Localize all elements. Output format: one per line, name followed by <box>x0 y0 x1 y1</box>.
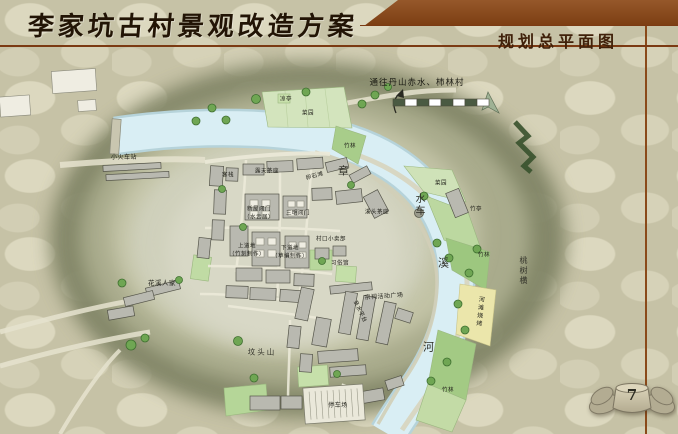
map-label-0: 通往丹山赤水、柿林村 <box>369 79 464 88</box>
page-number: 7 <box>588 386 676 404</box>
map-label-16: （竹刻制作） <box>229 252 265 258</box>
slide-title: 李家坑古村景观改造方案 <box>26 6 359 43</box>
map-label-28: 停车场 <box>328 403 348 409</box>
map-label-17: 下道地 <box>281 246 299 252</box>
section-label: 规划总平面图 <box>498 28 618 52</box>
map-label-33: 河 <box>423 342 435 353</box>
map-label-7: 露天茶座 <box>255 169 279 175</box>
map-label-30: 水 <box>416 195 427 205</box>
map-label-21: 花溪人家 <box>148 280 176 287</box>
map-label-2: 凉亭 <box>280 97 292 103</box>
map-label-22: 坟头山 <box>248 348 277 356</box>
map-label-27: 竹林 <box>442 388 454 394</box>
map-label-8: 新屋阊门 <box>247 207 271 213</box>
map-label-23: 宗祠活动广场 <box>364 293 403 302</box>
map-label-26: 桃树横 <box>519 256 527 286</box>
map-label-10: 三明阊门 <box>286 211 310 217</box>
map-label-15: 上道地 <box>238 244 256 250</box>
map-label-11: 溪头茶座 <box>365 210 389 216</box>
map-label-5: 卵石滩 <box>306 172 325 182</box>
map-label-25: 河滩烧烤 <box>474 296 483 328</box>
map-label-3: 菜园 <box>302 111 314 117</box>
map-label-12: 菜园 <box>435 181 447 187</box>
map-label-13: 竹亭 <box>470 207 482 213</box>
map-label-14: 竹林 <box>478 253 490 259</box>
header-sub-rule <box>360 25 678 26</box>
map-label-9: （水云居） <box>244 215 274 221</box>
map-label-24: 亲水平台 <box>351 300 366 324</box>
map-label-4: 竹林 <box>344 144 356 150</box>
map-label-20: 习俗馆 <box>331 261 349 267</box>
map-label-19: 村口小卖部 <box>316 237 346 243</box>
map-label-32: 溪 <box>438 258 450 269</box>
map-label-31: 车 <box>416 207 427 217</box>
map-label-29: 章 <box>338 166 350 177</box>
header-accent-bar <box>358 0 678 26</box>
map-label-18: （草编制作） <box>272 254 308 260</box>
map-label-6: 客栈 <box>222 173 234 179</box>
map-label-1: 小火车站 <box>111 155 137 161</box>
presentation-slide: 通往丹山赤水、柿林村小火车站凉亭菜园竹林卵石滩客栈露天茶座新屋阊门（水云居）三明… <box>0 0 678 434</box>
map-labels: 通往丹山赤水、柿林村小火车站凉亭菜园竹林卵石滩客栈露天茶座新屋阊门（水云居）三明… <box>0 0 678 434</box>
